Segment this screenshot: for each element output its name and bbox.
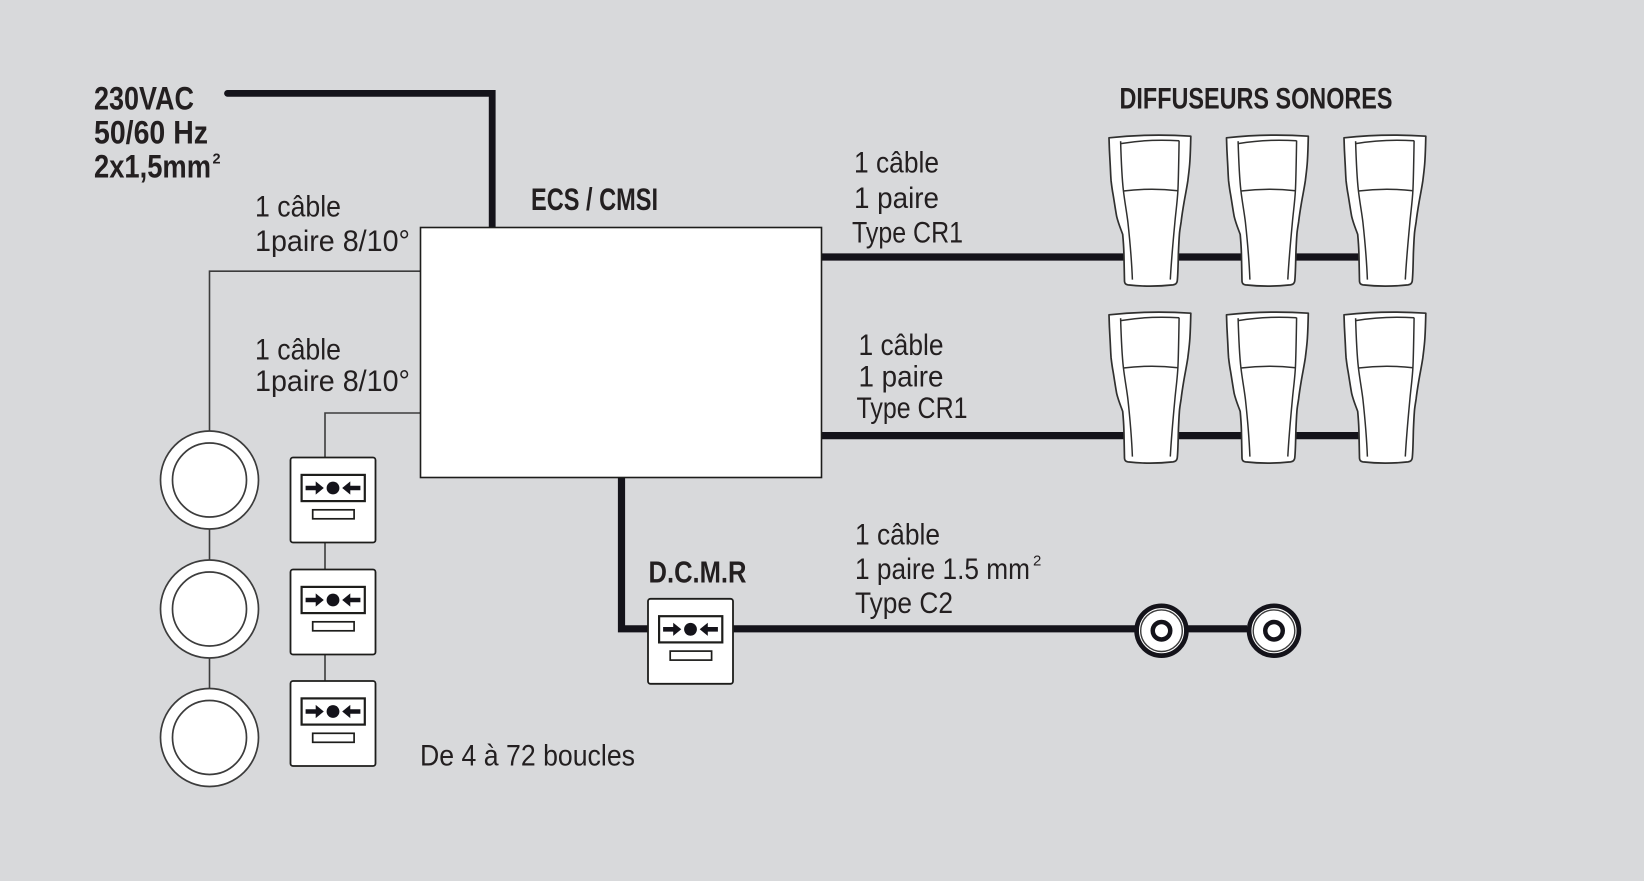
svg-text:Type CR1: Type CR1 <box>857 392 968 425</box>
svg-text:De 4 à 72 boucles: De 4 à 72 boucles <box>420 740 635 773</box>
svg-text:1 câble: 1 câble <box>859 329 944 362</box>
svg-text:1paire 8/10°: 1paire 8/10° <box>255 225 410 258</box>
svg-text:2: 2 <box>1033 553 1041 570</box>
svg-text:1 paire: 1 paire <box>859 361 944 394</box>
svg-text:DIFFUSEURS SONORES: DIFFUSEURS SONORES <box>1120 83 1393 116</box>
svg-text:1 paire 1.5 mm: 1 paire 1.5 mm <box>855 553 1030 586</box>
svg-text:D.C.M.R: D.C.M.R <box>649 555 747 590</box>
svg-text:50/60 Hz: 50/60 Hz <box>94 115 208 151</box>
svg-text:1 câble: 1 câble <box>854 147 939 180</box>
svg-text:2x1,5mm: 2x1,5mm <box>94 149 211 185</box>
svg-text:1 paire: 1 paire <box>854 182 939 215</box>
svg-text:Type C2: Type C2 <box>855 587 953 620</box>
svg-text:2: 2 <box>213 152 221 168</box>
svg-text:1 câble: 1 câble <box>855 519 940 552</box>
svg-text:1paire 8/10°: 1paire 8/10° <box>255 365 410 398</box>
svg-text:1 câble: 1 câble <box>255 191 341 224</box>
svg-text:1 câble: 1 câble <box>255 334 341 367</box>
svg-text:ECS / CMSI: ECS / CMSI <box>531 181 658 217</box>
svg-text:Type CR1: Type CR1 <box>852 217 963 250</box>
svg-text:230VAC: 230VAC <box>94 81 194 117</box>
